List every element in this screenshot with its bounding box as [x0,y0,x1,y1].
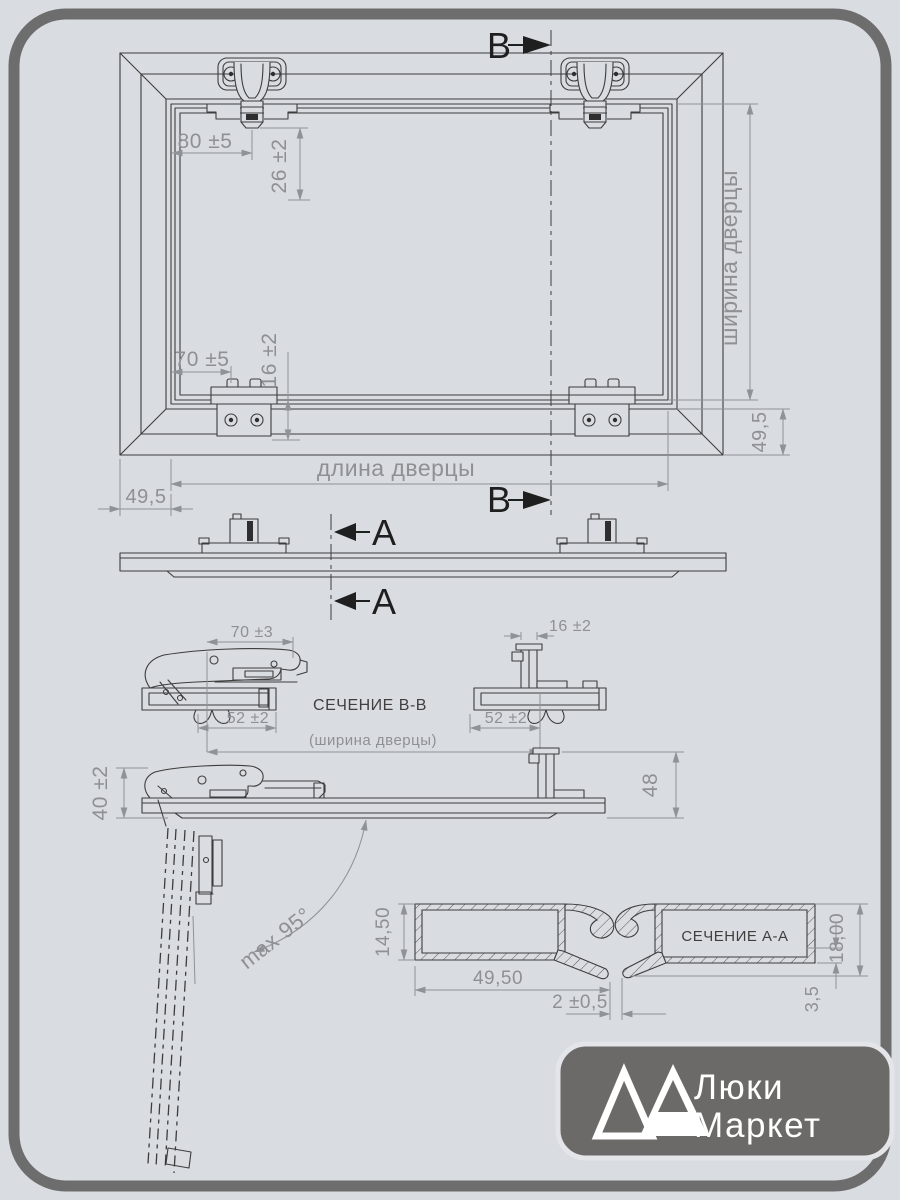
aa-dim-total-height: 18,00 [827,913,848,963]
dim-total-height: 48 [639,773,662,797]
drawing-sheet: 80 ±5 26 ±2 70 ±5 16 ±2 ширина дверцы 49… [0,0,900,1200]
aa-dim-wall: 3,5 [802,986,822,1013]
bb-dim-plate-left: 52 ±2 [227,710,269,727]
bb-dim-arm: 70 ±3 [231,624,273,641]
dim-frame-right: 49,5 [749,412,771,453]
dim-hinge-depth: 26 ±2 [268,139,291,194]
logo-text-line2: Маркет [694,1106,822,1145]
section-label-b-top: B [487,25,511,66]
aa-dim-profile-height: 14,50 [373,907,394,957]
dim-frame-bottom: 49,5 [126,486,167,508]
section-label-a-top: A [372,512,396,553]
section-label-b-bottom: B [487,479,511,520]
logo-badge: Люки Маркет [558,1044,892,1158]
page-background [0,0,900,1200]
dim-bracket-offset: 70 ±5 [175,348,230,371]
aa-dim-gap: 2 ±0,5 [552,992,608,1013]
aa-title: СЕЧЕНИЕ A-A [681,928,788,945]
hatch-technical-drawing: 80 ±5 26 ±2 70 ±5 16 ±2 ширина дверцы 49… [0,0,900,1200]
dim-bracket-depth: 16 ±2 [258,333,281,388]
bottom-bracket-right [569,379,635,436]
bb-dim-bracket: 16 ±2 [549,618,591,635]
bb-title: СЕЧЕНИЕ B-B [313,697,427,714]
aa-dim-profile-width: 49,50 [473,968,523,989]
bb-dim-plate-right: 52 ±2 [485,710,527,727]
dim-hinge-height: 40 ±2 [89,766,112,821]
door-length-label: длина дверцы [317,455,475,481]
bb-door-width-ref: (ширина дверцы) [309,732,437,749]
section-label-a-bottom: A [372,581,396,622]
dim-hinge-offset: 80 ±5 [178,130,233,153]
door-width-label: ширина дверцы [716,170,742,346]
logo-text-line1: Люки [694,1068,784,1107]
